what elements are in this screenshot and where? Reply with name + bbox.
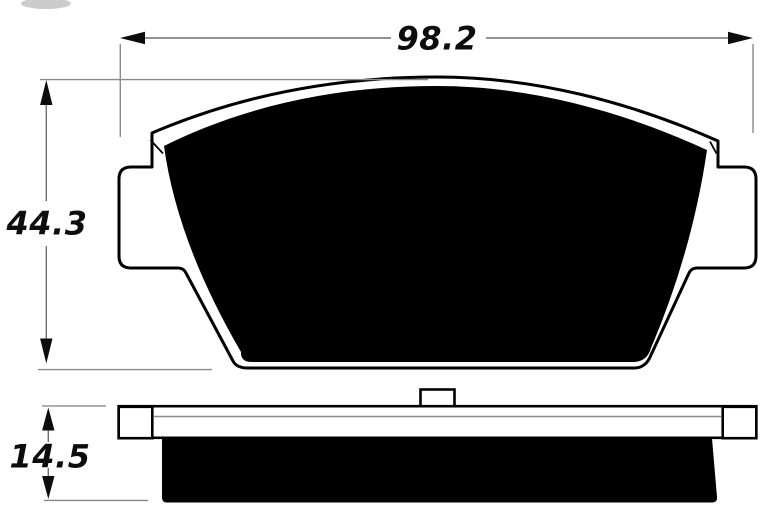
side-wear-tab xyxy=(421,390,455,408)
friction-material xyxy=(164,86,707,362)
front-view xyxy=(119,77,756,368)
arrowhead-down-icon xyxy=(40,339,52,364)
side-right-lug xyxy=(723,407,757,438)
arrowhead-down-icon xyxy=(42,476,54,499)
side-view xyxy=(119,390,757,503)
scan-artifact xyxy=(21,0,71,9)
arrowhead-up-icon xyxy=(42,408,54,431)
arrowhead-left-icon xyxy=(120,32,145,44)
width-dimension-label: 98.2 xyxy=(397,20,478,58)
arrowhead-up-icon xyxy=(40,80,52,105)
side-left-lug xyxy=(119,407,153,438)
brake-pad-drawing: 98.2 44.3 14.5 xyxy=(0,0,778,520)
drawing-canvas: 98.2 44.3 14.5 xyxy=(0,0,778,520)
height-dimension-label: 44.3 xyxy=(6,205,88,243)
side-backing-plate xyxy=(119,406,757,438)
thickness-dimension-label: 14.5 xyxy=(10,438,91,476)
arrowhead-right-icon xyxy=(728,32,753,44)
side-friction-material xyxy=(162,439,717,503)
